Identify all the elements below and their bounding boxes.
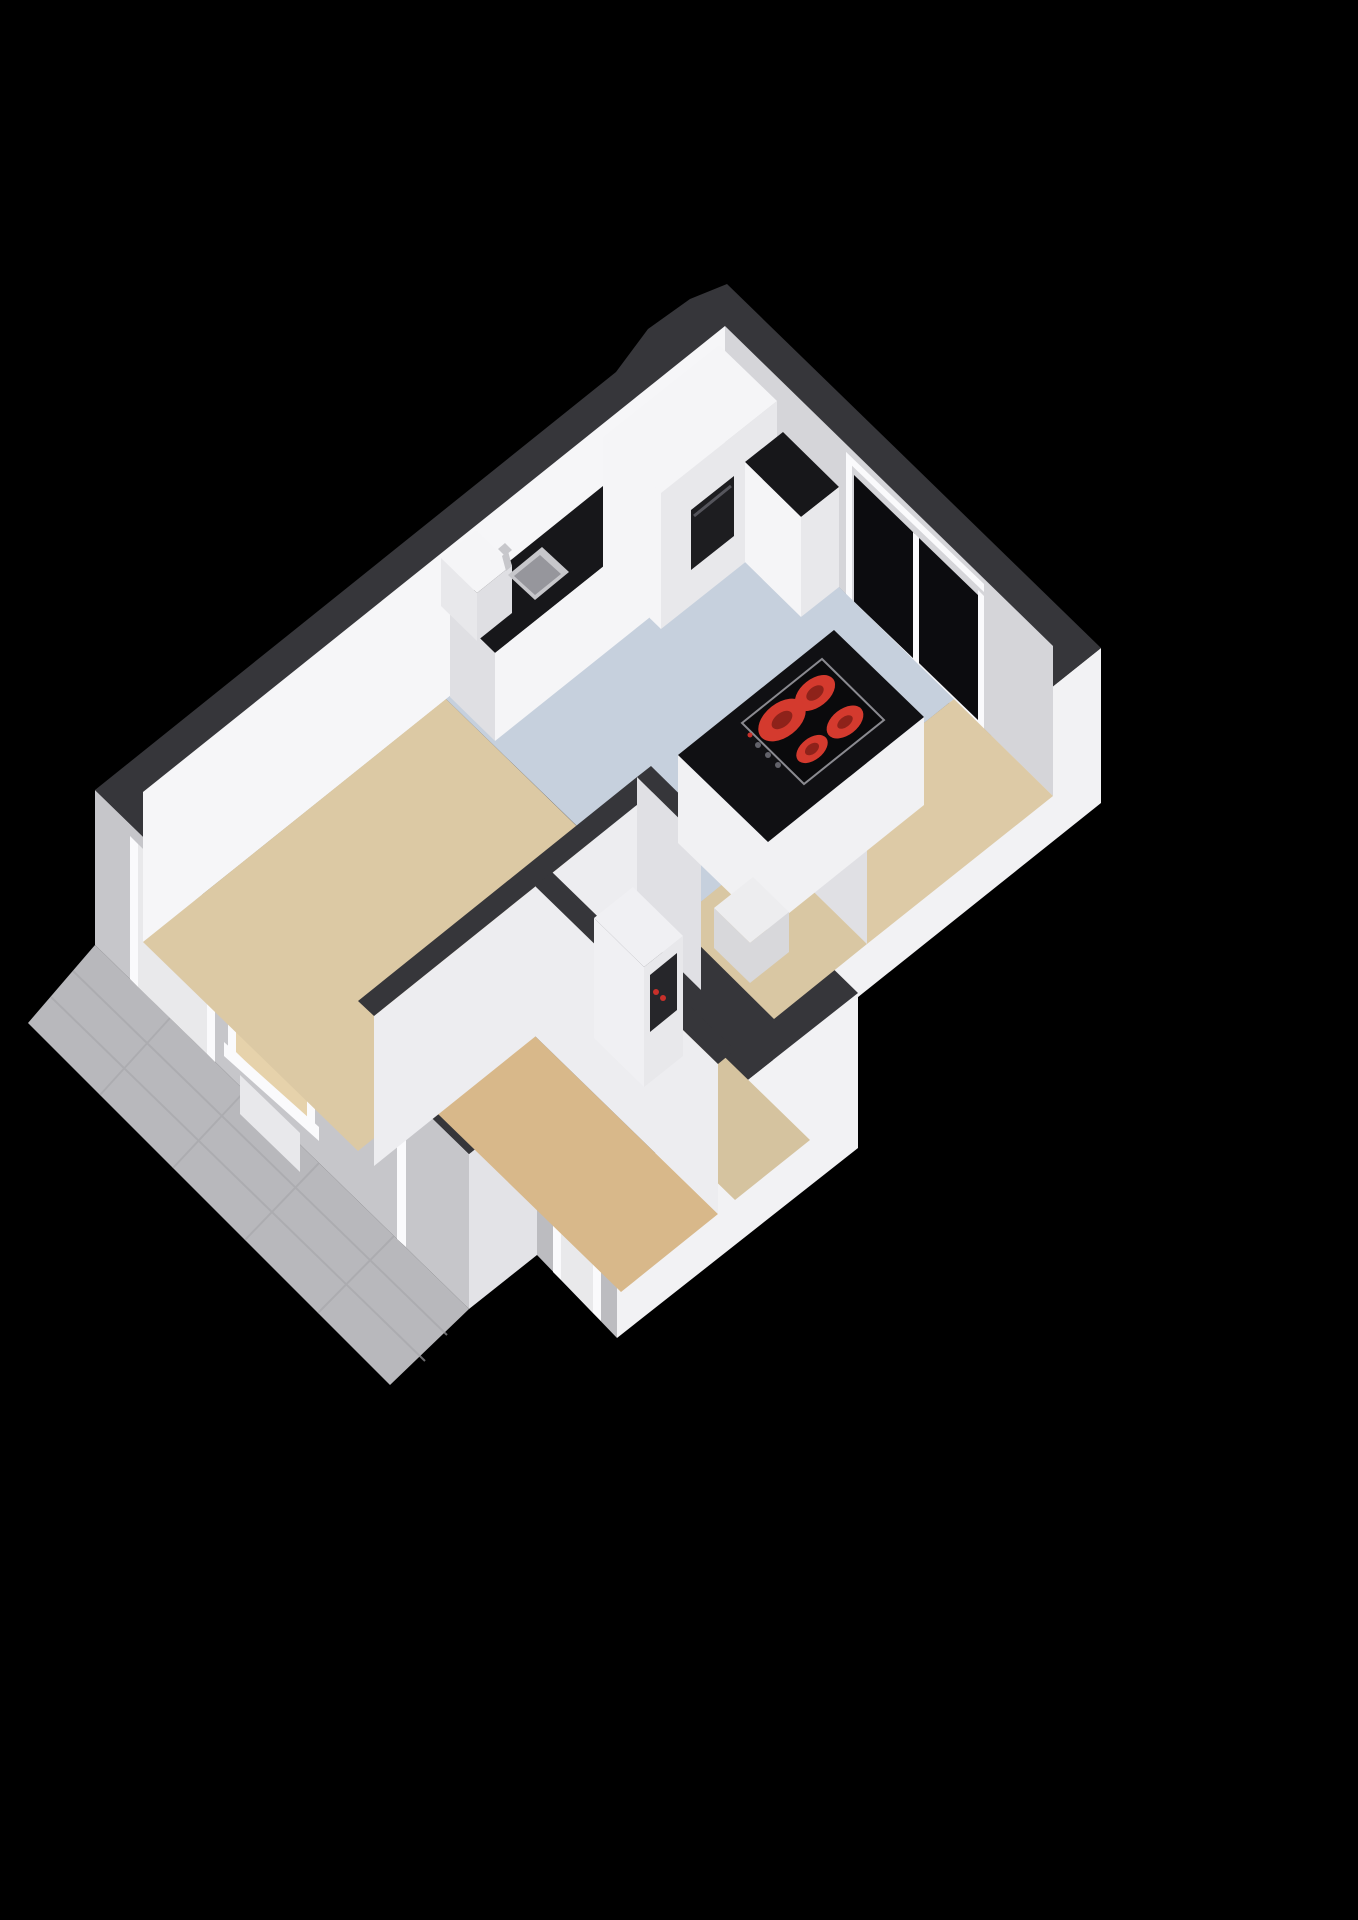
sliding-window-jamb-left <box>846 452 852 600</box>
sliding-window-mullion <box>913 532 919 665</box>
cooktop-knob <box>775 762 781 768</box>
cooktop-knob <box>765 752 771 758</box>
front-door-trim-left <box>130 836 138 987</box>
meter-led <box>653 989 659 995</box>
floorplan-3d <box>0 0 1358 1920</box>
cooktop-indicator <box>748 733 753 738</box>
meter-led <box>660 995 666 1001</box>
cooktop-knob <box>755 742 761 748</box>
sliding-window-jamb-right <box>978 590 984 738</box>
